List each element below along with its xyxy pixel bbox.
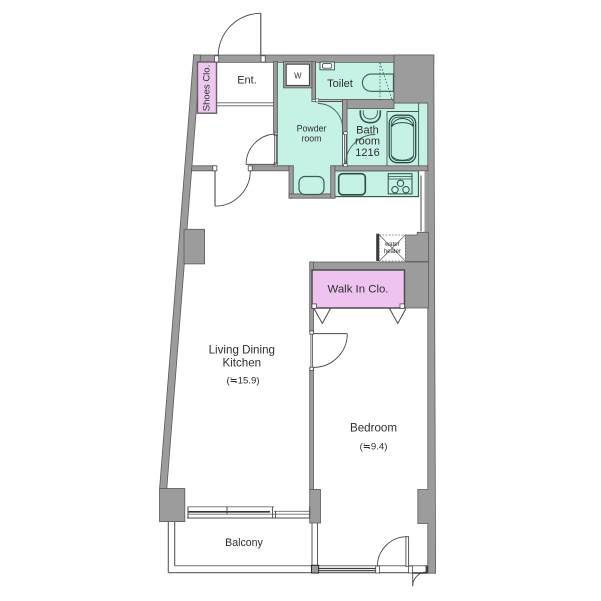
svg-text:(≒15.9): (≒15.9) bbox=[226, 376, 259, 387]
svg-text:Bath: Bath bbox=[356, 125, 379, 137]
svg-text:(≒9.4): (≒9.4) bbox=[360, 442, 388, 453]
svg-text:Bedroom: Bedroom bbox=[350, 422, 397, 435]
svg-text:W: W bbox=[294, 72, 302, 81]
svg-text:room: room bbox=[355, 136, 380, 148]
svg-text:Toilet: Toilet bbox=[327, 78, 353, 90]
svg-text:water: water bbox=[384, 242, 400, 248]
svg-text:Shoes Clo.: Shoes Clo. bbox=[202, 65, 213, 111]
svg-text:heater: heater bbox=[384, 249, 401, 255]
svg-text:Powder: Powder bbox=[297, 124, 327, 134]
svg-text:Walk In Clo.: Walk In Clo. bbox=[328, 284, 389, 296]
svg-text:room: room bbox=[301, 134, 321, 144]
svg-text:Living Dining: Living Dining bbox=[209, 344, 275, 357]
svg-text:Balcony: Balcony bbox=[225, 537, 263, 549]
svg-text:Ent.: Ent. bbox=[237, 75, 257, 87]
svg-text:Kitchen: Kitchen bbox=[222, 357, 261, 370]
svg-text:1216: 1216 bbox=[355, 147, 379, 159]
